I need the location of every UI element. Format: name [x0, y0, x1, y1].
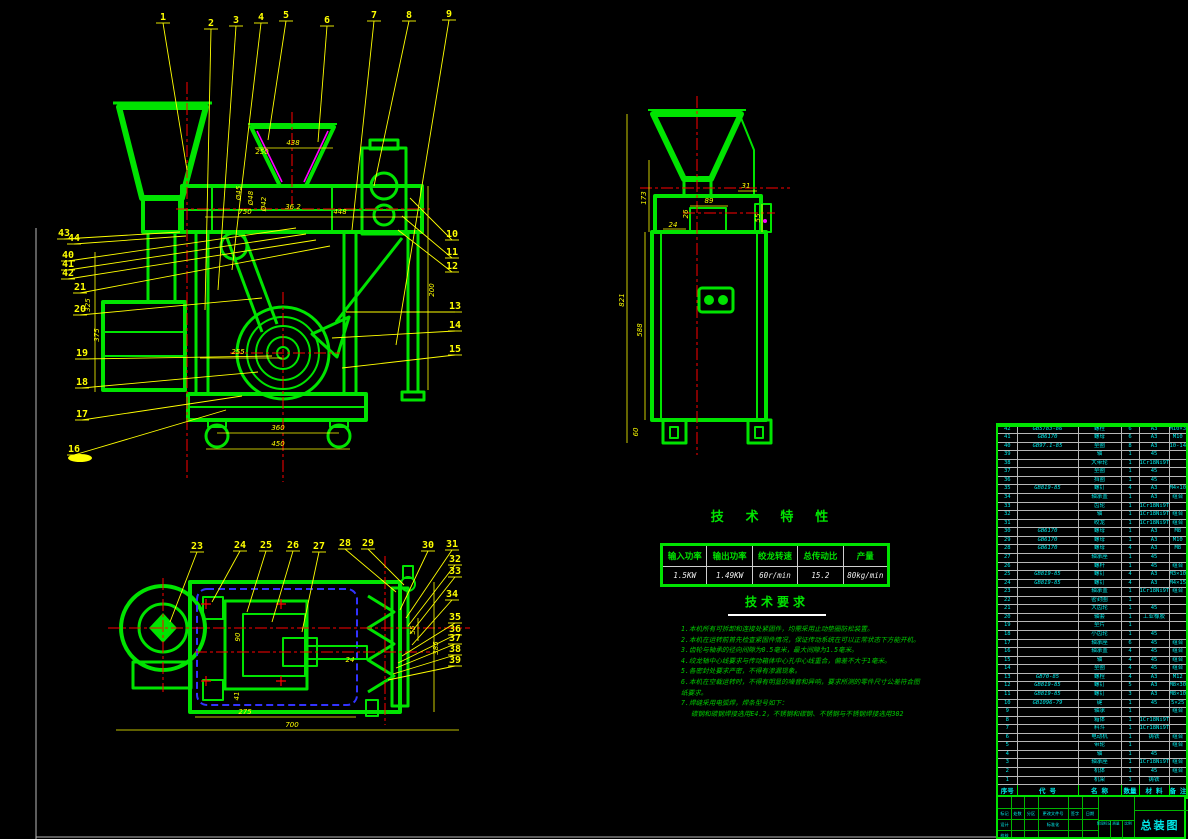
bom-cell — [1017, 656, 1078, 665]
callout-leader — [396, 20, 449, 345]
bom-row: 29GB6170螺母1A3M10 — [997, 536, 1187, 545]
bom-cell: M8 — [1169, 528, 1187, 537]
bom-row: 5带轮1组合 — [997, 742, 1187, 751]
bom-cell: 组合 — [1169, 759, 1187, 768]
dim-label: 588 — [636, 323, 644, 337]
bom-cell — [1169, 622, 1187, 631]
bom-cell: 35 — [997, 485, 1017, 494]
bom-cell: 1 — [1121, 511, 1139, 520]
tech-value-cell: 80kg/min — [843, 567, 888, 586]
bom-cell: A3 — [1139, 579, 1169, 588]
bom-cell: 轴承座 — [1078, 639, 1121, 648]
bom-row: 37垫圈145 — [997, 468, 1187, 477]
dim-label: 700 — [285, 721, 299, 729]
tech-header-cell: 总传动比 — [798, 545, 843, 567]
bom-cell: 7 — [997, 725, 1017, 734]
callout-leader — [400, 551, 428, 610]
bom-cell: 42 — [997, 425, 1017, 434]
bom-cell: 组合 — [1169, 519, 1187, 528]
tech-value-cell: 15.2 — [798, 567, 843, 586]
bom-cell: A3 — [1139, 434, 1169, 443]
bom-cell: 45 — [1139, 476, 1169, 485]
bom-cell: A3 — [1139, 545, 1169, 554]
callout-leader — [368, 549, 404, 585]
callout-number: 38 — [449, 644, 461, 655]
title-block-label: 质量 — [1112, 822, 1119, 827]
bom-row: 32轴11Cr18Ni9Ti组合 — [997, 511, 1187, 520]
bom-cell: GB819-85 — [1017, 579, 1078, 588]
bom-cell: 1 — [1121, 528, 1139, 537]
bom-cell: 轴 — [1078, 656, 1121, 665]
bom-cell: 轴承盖 — [1078, 494, 1121, 503]
callout-number: 14 — [449, 320, 461, 331]
bom-cell: 8 — [1121, 442, 1139, 451]
bom-row: 28GB6170螺母4A3M8 — [997, 545, 1187, 554]
bom-cell: 29 — [997, 536, 1017, 545]
bom-cell: 组合 — [1169, 708, 1187, 717]
bom-cell: 1 — [1121, 622, 1139, 631]
title-block-label: 标准化 — [1047, 822, 1060, 828]
callout-leader — [212, 551, 240, 602]
bom-cell: 5 — [1121, 682, 1139, 691]
bom-cell — [1169, 725, 1187, 734]
requirement-line: 2.本机在运转前首先检查紧固件情况，保证传动系统在可以正常状态下方能开机。 — [681, 635, 921, 646]
bom-row: 3轴承座11Cr18Ni9Ti组合 — [997, 759, 1187, 768]
bom-cell: 螺母 — [1078, 434, 1121, 443]
bom-cell: 45 — [1139, 648, 1169, 657]
callout-number: 27 — [313, 541, 325, 552]
bom-cell: 2 — [997, 768, 1017, 777]
bom-cell — [1017, 519, 1078, 528]
bom-cell: 组合 — [1169, 768, 1187, 777]
bom-cell — [1017, 639, 1078, 648]
bom-cell: A3 — [1139, 425, 1169, 434]
callout-number: 17 — [76, 409, 88, 420]
bom-cell: 6 — [1121, 425, 1139, 434]
callout-number: 30 — [422, 540, 434, 551]
bom-cell: 螺杆 — [1078, 562, 1121, 571]
bom-cell: A3 — [1139, 673, 1169, 682]
callout-number: 1 — [160, 12, 166, 23]
tech-requirements-title: 技术要求 — [728, 593, 826, 616]
bom-cell: 3 — [1121, 690, 1139, 699]
bom-cell: GB819-85 — [1017, 571, 1078, 580]
bom-row: 34轴承盖1A3组合 — [997, 494, 1187, 503]
tech-characteristics-title: 技 术 特 性 — [693, 506, 853, 525]
bom-cell: 料斗 — [1078, 725, 1121, 734]
bom-cell: M8×30 — [1169, 682, 1187, 691]
bom-cell — [1017, 768, 1078, 777]
bom-cell: 45 — [1139, 468, 1169, 477]
bom-row: 16轴承盖445组合 — [997, 648, 1187, 657]
bom-cell — [1017, 502, 1078, 511]
title-block-label: 阶段标记 — [1097, 822, 1111, 827]
callout-number: 31 — [446, 539, 458, 550]
dim-label: 255 — [231, 348, 245, 356]
bom-cell: 10-140HV — [1169, 442, 1187, 451]
callout-number: 37 — [449, 633, 461, 644]
bom-cell: 18 — [997, 631, 1017, 640]
bom-cell: A3 — [1139, 442, 1169, 451]
front-dim-lines — [95, 148, 428, 449]
dim-label: 173 — [640, 191, 648, 204]
callout-number: 23 — [191, 541, 203, 552]
bom-cell — [1017, 725, 1078, 734]
bom-cell: 14 — [997, 665, 1017, 674]
bom-cell: 组合 — [1169, 656, 1187, 665]
bom-rows: 42GB5783-86螺栓6A3M10×3041GB6170螺母6A3M1040… — [997, 425, 1187, 785]
bom-cell: 45 — [1139, 699, 1169, 708]
title-block-label: 校核 — [1000, 833, 1008, 839]
bom-cell — [1139, 708, 1169, 717]
callout-leader — [74, 410, 226, 455]
bom-cell: 铸铁 — [1139, 776, 1169, 785]
bom-cell: 垫圈 — [1078, 665, 1121, 674]
bom-cell: 32 — [997, 511, 1017, 520]
dim-label: 750 — [238, 208, 252, 216]
bom-cell — [1017, 759, 1078, 768]
bom-cell: 6 — [1121, 639, 1139, 648]
bom-row: 24GB819-85螺钉4A3M4×15 — [997, 579, 1187, 588]
title-block-label: 日期 — [1086, 811, 1094, 817]
bom-cell: 1Cr18Ni9Ti — [1139, 716, 1169, 725]
bom-cell: 1 — [1121, 725, 1139, 734]
tech-characteristics-table: 输入功率输出功率绞龙转速总传动比产量 1.5KW1.49KW60r/min15.… — [660, 543, 890, 587]
callout-number: 3 — [233, 15, 239, 26]
callout-number: 34 — [446, 589, 458, 600]
bom-cell: 4 — [1121, 571, 1139, 580]
bom-cell: 1Cr18Ni9Ti — [1139, 459, 1169, 468]
dim-label: 438 — [286, 139, 300, 147]
bom-cell: 1Cr18Ni9Ti — [1139, 759, 1169, 768]
callout-leader — [302, 552, 319, 632]
bom-cell: GB6170 — [1017, 434, 1078, 443]
tech-table-value-row: 1.5KW1.49KW60r/min15.280kg/min — [662, 567, 889, 586]
bom-cell: 螺钉 — [1078, 690, 1121, 699]
bom-cell: M10×30 — [1169, 425, 1187, 434]
bom-row: 38大带轮11Cr18Ni9Ti — [997, 459, 1187, 468]
bom-row: 7料斗11Cr18Ni9Ti — [997, 725, 1187, 734]
bom-row: 8箱体11Cr18Ni9Ti — [997, 716, 1187, 725]
requirement-line: 5.各密封处要求严密，不得有渗漏现象。 — [681, 666, 921, 677]
bom-cell: GB5783-86 — [1017, 425, 1078, 434]
bom-cell: A3 — [1139, 571, 1169, 580]
tech-value-cell: 60r/min — [752, 567, 797, 586]
title-block-label: 分区 — [1027, 811, 1035, 817]
callout-number: 11 — [446, 247, 458, 258]
bom-cell: 螺母 — [1078, 536, 1121, 545]
bom-cell — [1017, 622, 1078, 631]
bom-cell: 1 — [1121, 742, 1139, 751]
bom-cell: M10 — [1169, 536, 1187, 545]
tech-table-header-row: 输入功率输出功率绞龙转速总传动比产量 — [662, 545, 889, 567]
bom-row: 2机体145组合 — [997, 768, 1187, 777]
bom-cell: 垫圈 — [1078, 442, 1121, 451]
bom-cell: 1Cr18Ni9Ti — [1139, 519, 1169, 528]
page-frame — [36, 228, 996, 839]
bom-cell: 密封圈 — [1078, 596, 1121, 605]
bom-cell — [1169, 776, 1187, 785]
bom-cell: 45 — [1139, 768, 1169, 777]
bom-cell: 1 — [1121, 759, 1139, 768]
bom-cell: 45 — [1139, 553, 1169, 562]
callout-number: 13 — [449, 301, 461, 312]
dim-label: 60 — [632, 427, 640, 436]
bom-cell — [1017, 468, 1078, 477]
bom-cell: 26 — [997, 562, 1017, 571]
bom-cell: 22 — [997, 596, 1017, 605]
bom-cell: 1Cr18Ni9Ti — [1139, 511, 1169, 520]
callout-number: 21 — [74, 282, 86, 293]
bom-cell: 31 — [997, 519, 1017, 528]
dim-label: 450 — [271, 440, 285, 448]
dim-label: 89 — [705, 197, 714, 205]
dim-label: 250 — [255, 148, 269, 156]
bom-cell: 8 — [997, 716, 1017, 725]
bom-row: 25GB819-85螺钉4A3M3×10 — [997, 571, 1187, 580]
callout-leader — [80, 246, 330, 293]
tech-requirements-list: 1.本机所有可拆卸和连接处紧固件，均需采用止动垫圈防松装置。2.本机在运转前首先… — [681, 624, 921, 719]
callout-number: 6 — [324, 15, 330, 26]
bom-cell: A3 — [1139, 536, 1169, 545]
bom-cell: 1 — [1121, 502, 1139, 511]
bom-cell — [1139, 742, 1169, 751]
tech-header-cell: 输入功率 — [662, 545, 707, 567]
callout-leader — [393, 655, 455, 674]
bom-cell: 1 — [1121, 468, 1139, 477]
bom-cell: 组合 — [1169, 588, 1187, 597]
bom-row: 15轴445组合 — [997, 656, 1187, 665]
bom-cell: 绞龙 — [1078, 519, 1121, 528]
bom-cell: 20 — [997, 613, 1017, 622]
dim-label: 24 — [346, 656, 355, 664]
bom-cell: 4 — [1121, 485, 1139, 494]
tech-header-cell: 产量 — [843, 545, 888, 567]
top-auger — [366, 566, 415, 716]
bom-cell: 36 — [997, 476, 1017, 485]
bom-cell: 11 — [997, 690, 1017, 699]
bom-cell: 5×25 — [1169, 699, 1187, 708]
callout-number: 9 — [446, 9, 452, 20]
bom-cell — [1169, 451, 1187, 460]
bom-cell: 1 — [1121, 716, 1139, 725]
dim-label: 275 — [238, 708, 252, 716]
bom-row: 6电动机1铸铁组合 — [997, 733, 1187, 742]
bom-cell — [1017, 648, 1078, 657]
bom-cell: 螺母 — [1078, 545, 1121, 554]
title-block-label: 签字 — [1071, 811, 1079, 817]
bom-cell: 1 — [1121, 699, 1139, 708]
callout-number: 44 — [68, 233, 80, 244]
dim-label: 26 — [682, 209, 690, 218]
bom-row: 42GB5783-86螺栓6A3M10×30 — [997, 425, 1187, 434]
bom-cell: GB6170 — [1017, 536, 1078, 545]
requirement-line: 3.齿轮与轴承的径向间隙为0.5毫米，最大间隙为1.5毫米。 — [681, 645, 921, 656]
bom-cell: 45 — [1139, 665, 1169, 674]
callout-leader — [272, 551, 293, 622]
tech-header-cell: 输出功率 — [707, 545, 752, 567]
side-dim-lines — [627, 114, 762, 443]
bom-row: 22密封圈1 — [997, 596, 1187, 605]
bom-cell — [1169, 750, 1187, 759]
bom-cell — [1169, 476, 1187, 485]
bom-cell — [1017, 613, 1078, 622]
cad-drawing-page: 43825075036.2448200255360450325375Ø45Ø48… — [0, 0, 1188, 839]
bom-cell: GB97.1-85 — [1017, 442, 1078, 451]
bom-cell: 电动机 — [1078, 733, 1121, 742]
bom-cell — [1017, 742, 1078, 751]
bom-row: 18小齿轮145 — [997, 631, 1187, 640]
bom-cell: 机架 — [1078, 776, 1121, 785]
drawing-title: 总装图 — [1134, 810, 1186, 839]
bom-cell: 24 — [997, 579, 1017, 588]
bom-cell: 螺钉 — [1078, 579, 1121, 588]
bom-cell — [1017, 451, 1078, 460]
bom-cell: 机体 — [1078, 768, 1121, 777]
bom-cell: 轴承盖 — [1078, 648, 1121, 657]
bom-cell: 轴套 — [1078, 613, 1121, 622]
bom-cell: 组合 — [1169, 511, 1187, 520]
dim-label: 36.2 — [285, 203, 301, 211]
bom-cell: 组合 — [1169, 733, 1187, 742]
bom-row: 27轴承座145 — [997, 553, 1187, 562]
bom-row: 17轴承座645组合 — [997, 639, 1187, 648]
bom-cell: GB6170 — [1017, 528, 1078, 537]
requirement-line: 6.本机在空载运转时，不得有明显的噪音和异响，要求所测的零件尺寸公差符合图纸要求… — [681, 677, 921, 698]
bom-cell: 4 — [1121, 579, 1139, 588]
bom-row: 41GB6170螺母6A3M10 — [997, 434, 1187, 443]
bom-cell — [1017, 562, 1078, 571]
top-view — [108, 556, 470, 730]
bom-cell: 15 — [997, 656, 1017, 665]
callout-number: 12 — [446, 261, 458, 272]
bom-cell: A3 — [1139, 485, 1169, 494]
callout-number: 5 — [283, 10, 289, 21]
dim-label: 360 — [271, 424, 285, 432]
callout-number: 20 — [74, 304, 86, 315]
bom-cell: 轴 — [1078, 750, 1121, 759]
bom-cell: 38 — [997, 459, 1017, 468]
front-view — [68, 82, 430, 482]
bom-row: 11GB819-85螺钉3A3M8×10 — [997, 690, 1187, 699]
bom-cell — [1169, 613, 1187, 622]
title-block-label: 更改文件号 — [1043, 811, 1064, 817]
bom-cell: GB819-85 — [1017, 690, 1078, 699]
bom-cell — [1139, 596, 1169, 605]
bom-cell: 1Cr18Ni9Ti — [1139, 502, 1169, 511]
bom-cell: A3 — [1139, 690, 1169, 699]
callout-number: 4 — [258, 12, 264, 23]
bom-cell — [1017, 511, 1078, 520]
requirement-line: 7.焊缝采用电弧焊，焊条型号如下： — [681, 698, 921, 709]
bom-row: 9轴承1组合 — [997, 708, 1187, 717]
callout-number: 2 — [208, 18, 214, 29]
bom-cell: GB819-85 — [1017, 485, 1078, 494]
bom-cell — [1017, 665, 1078, 674]
bom-cell: A3 — [1139, 682, 1169, 691]
bom-row: 40GB97.1-85垫圈8A310-140HV — [997, 442, 1187, 451]
bom-cell: 箱体 — [1078, 716, 1121, 725]
bom-cell: 45 — [1139, 605, 1169, 614]
bom-cell — [1169, 716, 1187, 725]
bom-cell — [1169, 596, 1187, 605]
discharge-box — [103, 302, 185, 390]
bom-cell: 17 — [997, 639, 1017, 648]
bom-cell: 4 — [1121, 665, 1139, 674]
bom-cell: 1 — [1121, 768, 1139, 777]
bom-row: 23轴承盖11Cr18Ni9Ti组合 — [997, 588, 1187, 597]
dim-label: 90 — [234, 632, 242, 641]
bom-row: 20轴套1工业橡胶 — [997, 613, 1187, 622]
dim-label: 55 — [754, 213, 762, 222]
bom-cell — [1017, 605, 1078, 614]
bom-cell: 21 — [997, 605, 1017, 614]
callout-number: 42 — [62, 268, 74, 279]
bom-row: 26螺杆145组合 — [997, 562, 1187, 571]
callout-number: 32 — [449, 554, 461, 565]
bom-cell: 16 — [997, 648, 1017, 657]
dim-label: Ø42 — [260, 196, 268, 212]
bom-cell: 螺栓 — [1078, 425, 1121, 434]
bom-cell: 1 — [1121, 708, 1139, 717]
title-block-label: 处数 — [1013, 811, 1021, 817]
bom-cell: 1 — [1121, 776, 1139, 785]
bom-cell: 30 — [997, 528, 1017, 537]
bom-cell: 1 — [997, 776, 1017, 785]
bom-cell — [1017, 476, 1078, 485]
bom-cell — [1017, 708, 1078, 717]
bom-cell — [1017, 459, 1078, 468]
bom-cell: M10 — [1169, 434, 1187, 443]
bom-cell — [1169, 468, 1187, 477]
bom-cell: GB6170 — [1017, 545, 1078, 554]
bom-cell — [1017, 716, 1078, 725]
bom-cell: 轴承盖 — [1078, 588, 1121, 597]
bom-cell: 螺母 — [1078, 528, 1121, 537]
bom-cell: 铸铁 — [1139, 733, 1169, 742]
bom-cell: GB70-85 — [1017, 673, 1078, 682]
belt-pulley — [221, 233, 349, 399]
bom-cell: 5 — [997, 742, 1017, 751]
title-block-label: 比例 — [1124, 822, 1131, 827]
bom-cell: M3×10 — [1169, 571, 1187, 580]
dim-label: Ø48 — [247, 190, 255, 206]
bom-cell: 45 — [1139, 451, 1169, 460]
bom-cell: 13 — [997, 673, 1017, 682]
bom-row: 13GB70-85螺栓4A3M12 — [997, 673, 1187, 682]
bom-cell: 1 — [1121, 562, 1139, 571]
bom-cell: 组合 — [1169, 648, 1187, 657]
bom-cell: 轴 — [1078, 451, 1121, 460]
bom-cell: 组合 — [1169, 639, 1187, 648]
bom-cell: 4 — [1121, 656, 1139, 665]
dim-label: 375 — [93, 328, 101, 342]
bom-cell: 组合 — [1169, 742, 1187, 751]
bom-cell: 45 — [1139, 656, 1169, 665]
dim-label: 821 — [618, 293, 626, 306]
bom-cell: 12 — [997, 682, 1017, 691]
bom-cell: 1 — [1121, 451, 1139, 460]
side-feet — [663, 420, 771, 443]
bom-cell: M4×10 — [1169, 485, 1187, 494]
bom-cell: 4 — [1121, 673, 1139, 682]
bom-cell: 大带轮 — [1078, 459, 1121, 468]
bom-cell: 1 — [1121, 733, 1139, 742]
dim-label: 41 — [233, 692, 241, 701]
callout-number: 18 — [76, 377, 88, 388]
bom-cell: 垫片 — [1078, 622, 1121, 631]
callout-number: 39 — [449, 655, 461, 666]
